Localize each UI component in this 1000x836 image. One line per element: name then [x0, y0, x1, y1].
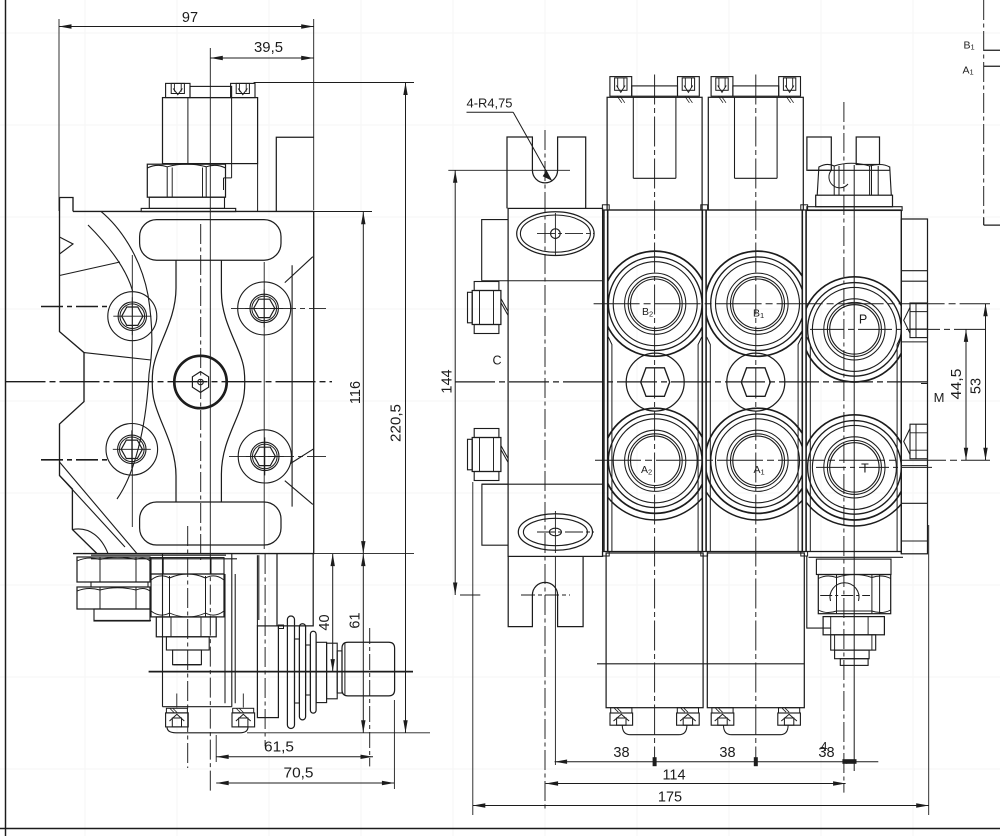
svg-text:38: 38	[719, 745, 735, 761]
svg-text:114: 114	[662, 768, 685, 784]
svg-text:97: 97	[182, 10, 198, 26]
svg-text:116: 116	[348, 381, 364, 404]
svg-text:175: 175	[658, 790, 682, 806]
svg-text:61: 61	[348, 612, 364, 628]
svg-text:4-R4,75: 4-R4,75	[467, 96, 513, 111]
svg-text:40: 40	[317, 614, 333, 630]
svg-text:39,5: 39,5	[254, 40, 283, 56]
svg-text:53: 53	[969, 378, 985, 394]
svg-text:38: 38	[613, 745, 629, 761]
svg-text:T: T	[861, 462, 869, 476]
svg-text:144: 144	[440, 369, 456, 393]
svg-text:4: 4	[821, 740, 828, 754]
svg-text:220,5: 220,5	[389, 404, 405, 442]
svg-text:70,5: 70,5	[284, 766, 314, 782]
svg-text:M: M	[934, 390, 945, 405]
svg-text:61,5: 61,5	[264, 740, 294, 756]
svg-text:44,5: 44,5	[949, 369, 965, 400]
svg-text:P: P	[859, 313, 867, 327]
svg-text:C: C	[492, 354, 501, 368]
